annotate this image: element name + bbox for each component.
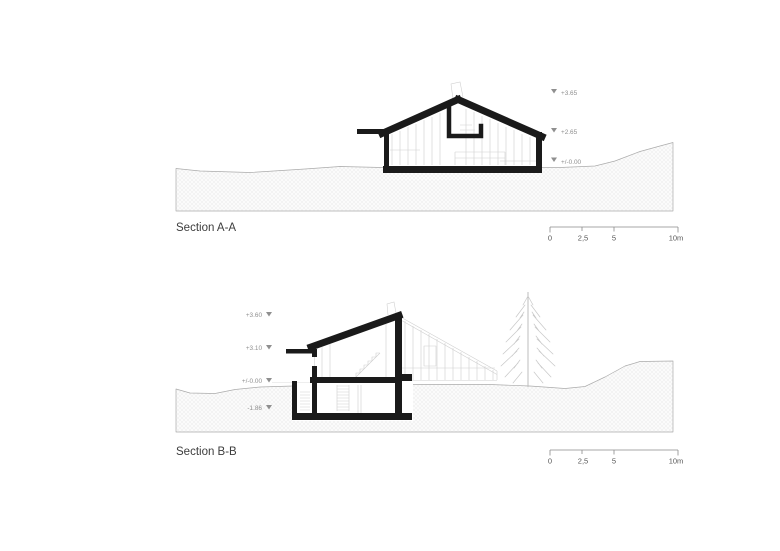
house-b-left-wall-upper: [312, 349, 317, 357]
elevation-marker: +/-0.00: [242, 378, 272, 385]
house-b-right-wall: [395, 317, 402, 414]
house-b-left-wall-basement: [312, 383, 317, 413]
section-b-title: Section B-B: [176, 446, 237, 458]
scale-label: 5: [612, 234, 616, 243]
elevation-value: +/-0.00: [242, 378, 263, 385]
section-a-title: Section A-A: [176, 222, 236, 234]
house-a-floor-slab: [383, 166, 542, 173]
drawing-sheet: +3.65 +2.65 +/-0.00 Section A-A 0 2,5 5 …: [0, 0, 780, 551]
elevation-marker: +3.65: [551, 89, 578, 97]
house-b-canopy: [286, 349, 312, 354]
facade-mullions: [399, 321, 495, 380]
house-b-basement-slab: [292, 413, 412, 420]
level-marker-icon: [551, 89, 557, 94]
level-marker-icon: [551, 128, 557, 133]
elevation-marker: +3.60: [246, 312, 272, 319]
elevation-value: +3.65: [561, 90, 578, 97]
facade-roof-slope: [397, 315, 497, 381]
scale-label: 0: [548, 234, 552, 243]
tree: [501, 292, 555, 387]
scale-label: 10m: [669, 457, 684, 466]
scale-label: 2,5: [578, 457, 588, 466]
elevation-marker: +/-0.00: [551, 158, 582, 167]
scale-label: 0: [548, 457, 552, 466]
scale-label: 2,5: [578, 234, 588, 243]
scale-label: 5: [612, 457, 616, 466]
level-marker-icon: [266, 312, 272, 317]
elevation-value: +3.10: [246, 345, 263, 352]
stair-basement: [337, 385, 349, 411]
sections-drawing: +3.65 +2.65 +/-0.00 Section A-A 0 2,5 5 …: [0, 0, 780, 551]
level-marker-icon: [551, 158, 557, 163]
elevation-value: +/-0.00: [561, 159, 582, 166]
antenna: [387, 302, 396, 315]
elevation-marker: +3.10: [246, 345, 272, 352]
elevation-value: +3.60: [246, 312, 263, 319]
scale-label: 10m: [669, 234, 684, 243]
house-b-left-wall-lower: [312, 366, 317, 378]
stair-lightwell: [300, 392, 310, 410]
section-b: +3.60 +3.10 +/-0.00 -1.86 Section B-B 0 …: [176, 292, 683, 466]
level-marker-icon: [266, 345, 272, 350]
elevation-value: -1.86: [247, 405, 262, 412]
house-b-ground-slab: [310, 377, 402, 383]
scale-bar-a: 0 2,5 5 10m: [548, 227, 683, 243]
section-a: +3.65 +2.65 +/-0.00 Section A-A 0 2,5 5 …: [176, 82, 683, 243]
scale-bar-b: 0 2,5 5 10m: [548, 450, 683, 466]
elevation-marker: +2.65: [551, 128, 578, 136]
scale-bar-line: [550, 227, 678, 233]
elevation-value: +2.65: [561, 129, 578, 136]
scale-bar-line: [550, 450, 678, 456]
terrain-b: [176, 361, 673, 432]
level-marker-icon: [266, 378, 272, 383]
elevation-markers-a: +3.65 +2.65 +/-0.00: [551, 89, 582, 166]
